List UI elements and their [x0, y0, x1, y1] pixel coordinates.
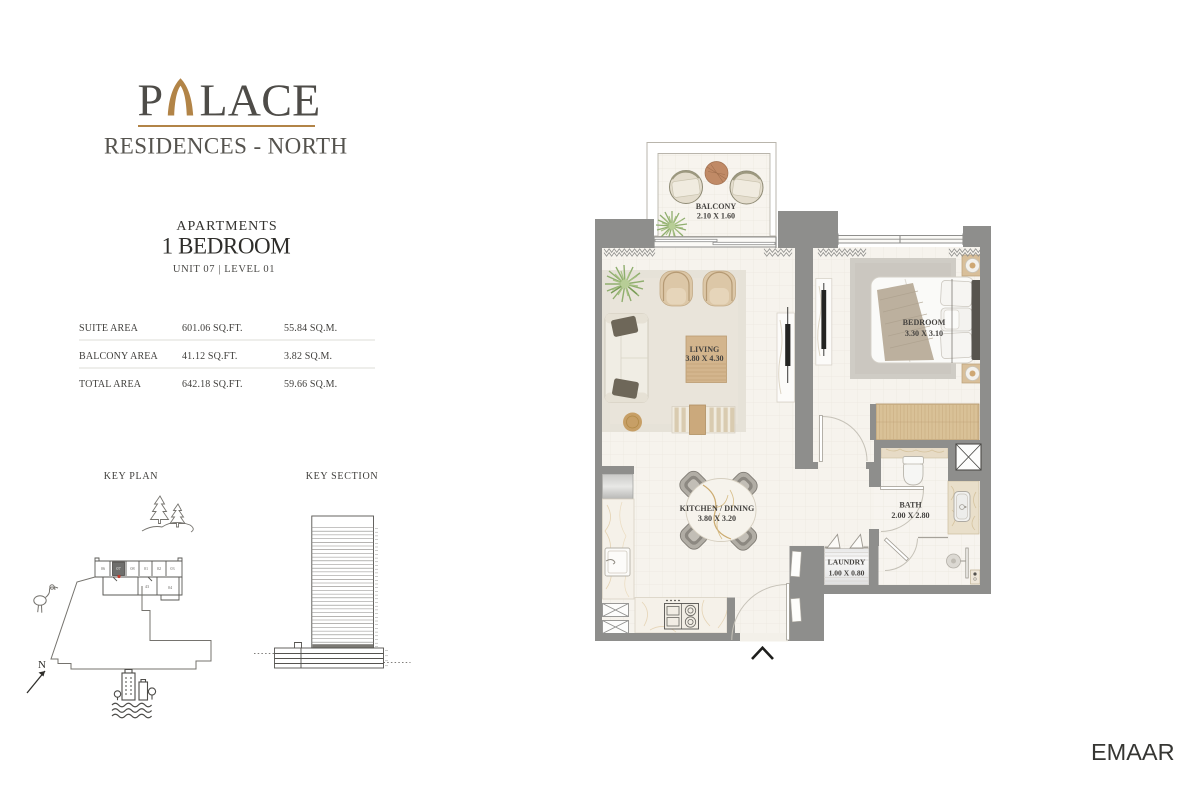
svg-text:01: 01 — [144, 566, 148, 571]
svg-text:RESIDENCES - NORTH: RESIDENCES - NORTH — [104, 134, 348, 159]
svg-text:3.30 X 3.10: 3.30 X 3.10 — [905, 329, 943, 338]
svg-text:55.84 SQ.M.: 55.84 SQ.M. — [284, 323, 337, 334]
svg-text:UNIT 07 | LEVEL 01: UNIT 07 | LEVEL 01 — [173, 264, 275, 275]
svg-text:BALCONY: BALCONY — [696, 202, 737, 211]
svg-text:KEY PLAN: KEY PLAN — [104, 471, 158, 482]
svg-text:KITCHEN / DINING: KITCHEN / DINING — [680, 504, 755, 513]
svg-text:06: 06 — [101, 566, 105, 571]
svg-text:3.82 SQ.M.: 3.82 SQ.M. — [284, 351, 332, 362]
svg-text:2.00 X 2.80: 2.00 X 2.80 — [891, 511, 929, 520]
svg-text:APARTMENTS: APARTMENTS — [176, 219, 277, 234]
svg-text:43: 43 — [145, 584, 149, 589]
svg-text:03: 03 — [170, 566, 174, 571]
svg-text:601.06 SQ.FT.: 601.06 SQ.FT. — [182, 323, 243, 334]
svg-text:LIVING: LIVING — [690, 345, 720, 354]
svg-text:08: 08 — [130, 566, 134, 571]
svg-text:KEY SECTION: KEY SECTION — [306, 471, 379, 482]
svg-text:BEDROOM: BEDROOM — [903, 318, 946, 327]
svg-text:EMAAR: EMAAR — [1091, 739, 1175, 765]
svg-text:LACE: LACE — [200, 75, 321, 126]
svg-text:59.66 SQ.M.: 59.66 SQ.M. — [284, 379, 337, 390]
svg-text:1 BEDROOM: 1 BEDROOM — [162, 234, 291, 259]
svg-text:2.10 X 1.60: 2.10 X 1.60 — [697, 212, 735, 221]
svg-text:BATH: BATH — [899, 501, 922, 510]
svg-text:1.00 X 0.80: 1.00 X 0.80 — [829, 569, 865, 578]
svg-text:642.18 SQ.FT.: 642.18 SQ.FT. — [182, 379, 243, 390]
svg-text:07: 07 — [116, 566, 120, 571]
svg-text:LAUNDRY: LAUNDRY — [828, 558, 866, 567]
svg-text:P: P — [138, 75, 164, 126]
svg-text:TOTAL AREA: TOTAL AREA — [79, 379, 142, 390]
svg-text:BALCONY AREA: BALCONY AREA — [79, 351, 159, 362]
svg-text:02: 02 — [157, 566, 161, 571]
svg-text:41.12 SQ.FT.: 41.12 SQ.FT. — [182, 351, 238, 362]
svg-text:N: N — [38, 659, 46, 671]
svg-text:3.80 X 4.30: 3.80 X 4.30 — [685, 354, 723, 363]
svg-text:3.80 X 3.20: 3.80 X 3.20 — [698, 514, 736, 523]
svg-text:SUITE AREA: SUITE AREA — [79, 323, 139, 334]
